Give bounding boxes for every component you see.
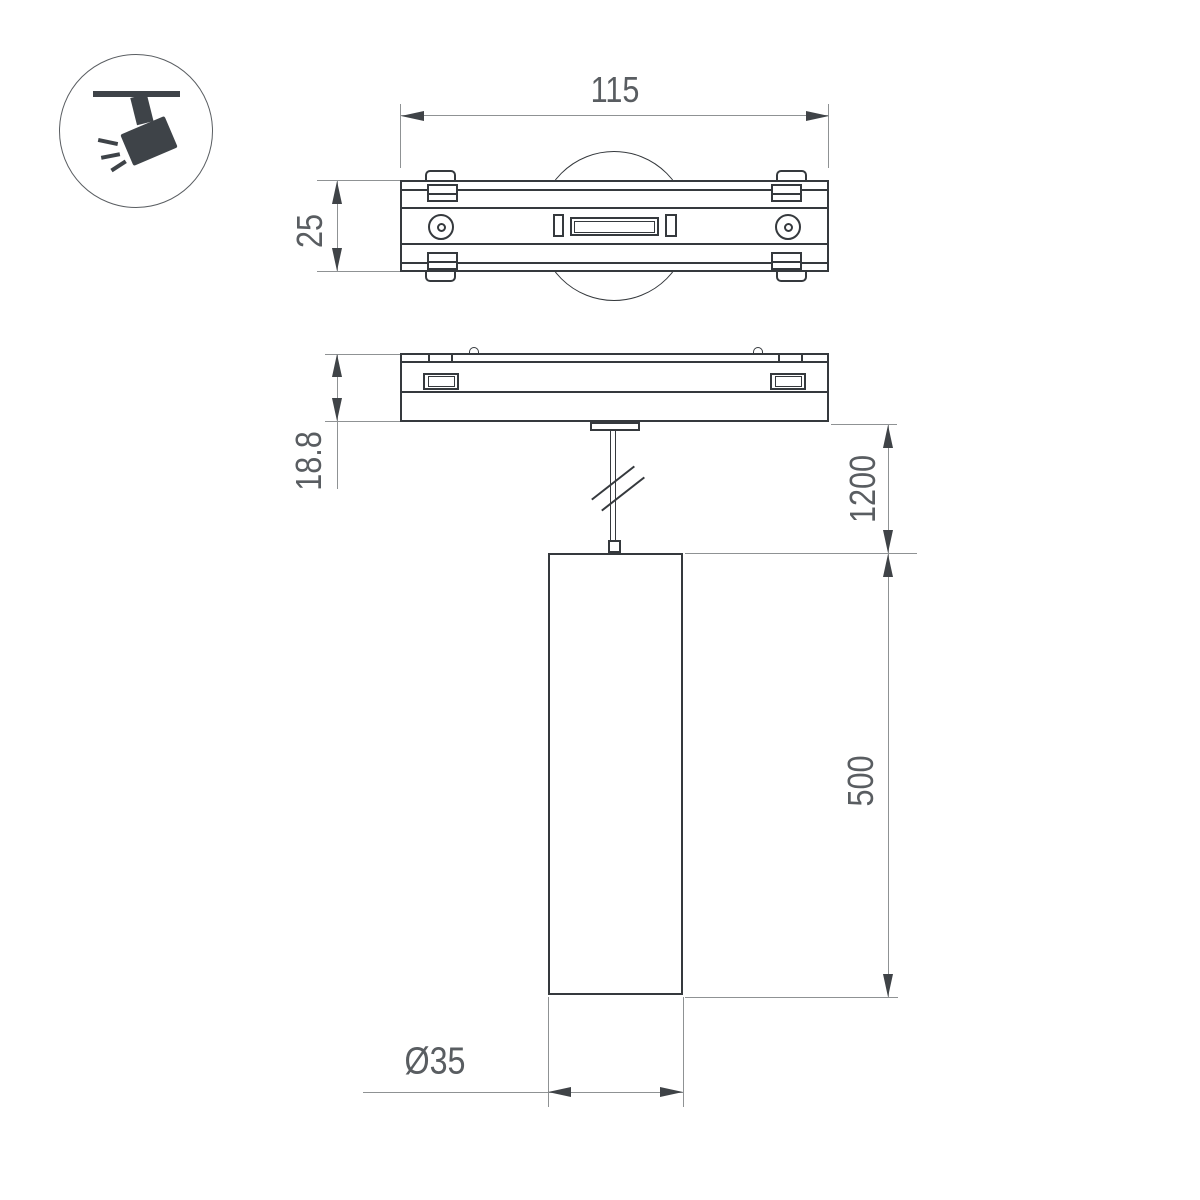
extension-line xyxy=(685,997,898,998)
dim-arrow xyxy=(883,530,893,553)
side-plate-tick xyxy=(451,354,453,362)
plan-contact-slot-inner xyxy=(574,221,655,233)
side-body-outline xyxy=(400,353,829,422)
dim-arrow xyxy=(883,425,893,448)
dim-arrow xyxy=(883,974,893,997)
side-clip-inner xyxy=(428,376,455,387)
plan-clip xyxy=(427,252,458,270)
plan-edge-line xyxy=(402,207,827,209)
plan-slot-lug xyxy=(665,214,677,237)
plan-clip xyxy=(427,184,458,202)
plan-clip xyxy=(771,184,802,202)
side-plate-tick xyxy=(801,354,803,362)
plan-screw-hole xyxy=(437,223,446,232)
pendant-cylinder xyxy=(548,553,683,995)
dimension-line xyxy=(888,553,889,997)
dim-label-track-width: 115 xyxy=(591,69,640,111)
plan-clip xyxy=(771,252,802,270)
cable-break-mark xyxy=(601,477,645,512)
dim-arrow xyxy=(548,1087,571,1097)
dimension-line xyxy=(400,115,829,116)
cable-lines xyxy=(610,430,616,542)
side-plate-tick xyxy=(428,354,430,362)
dim-arrow xyxy=(332,354,342,377)
dim-arrow xyxy=(806,111,829,121)
plan-edge-line xyxy=(402,189,827,191)
drawing-canvas: 115 25 18.8 xyxy=(0,0,1200,1200)
plan-edge-line xyxy=(402,243,827,245)
extension-line xyxy=(317,180,400,181)
plan-slot-lug xyxy=(553,214,564,237)
side-clip-inner xyxy=(775,376,802,387)
side-plate-tick xyxy=(778,354,780,362)
dim-arrow xyxy=(332,181,342,204)
dim-arrow xyxy=(332,248,342,271)
dim-arrow xyxy=(660,1087,683,1097)
dim-arrow xyxy=(332,398,342,421)
dim-label-lamp-diameter: Ø35 xyxy=(404,1041,465,1084)
plan-edge-line xyxy=(402,262,827,264)
dim-label-adapter-thickness: 18.8 xyxy=(288,431,330,491)
dim-label-lamp-height: 500 xyxy=(840,755,882,806)
side-divider-line xyxy=(402,391,827,393)
extension-line xyxy=(317,271,400,272)
dim-label-suspension-length: 1200 xyxy=(842,455,884,523)
dimension-line xyxy=(363,1092,683,1093)
side-top-plate-line xyxy=(402,361,827,363)
cable-grip xyxy=(608,540,621,553)
dim-label-track-depth: 25 xyxy=(289,214,331,248)
dim-arrow xyxy=(401,111,424,121)
plan-screw-hole xyxy=(784,223,793,232)
dim-arrow xyxy=(883,554,893,577)
